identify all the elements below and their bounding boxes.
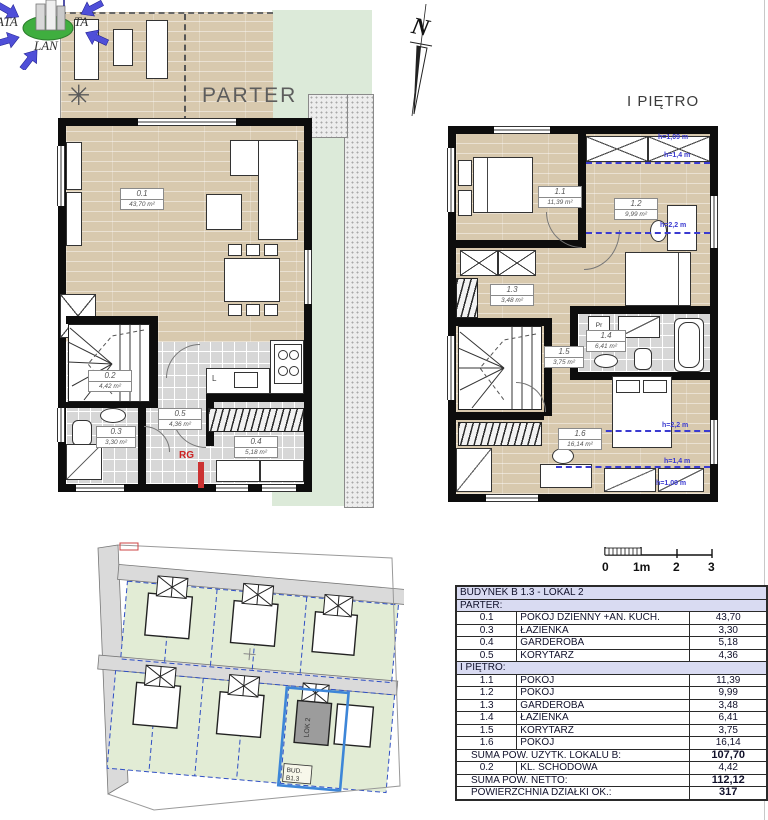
wardrobe-bench (260, 460, 304, 482)
plot-area-value: 317 (690, 787, 767, 800)
fridge-label: L (212, 374, 216, 383)
room-no: 1.2 (456, 687, 517, 700)
height-annotation: h=1,09 m (656, 480, 686, 487)
room-area: 9,99 (690, 687, 767, 700)
logo-text-ata: ATA (0, 14, 18, 29)
window (138, 118, 236, 126)
wall (570, 306, 578, 380)
wall (150, 316, 158, 402)
wardrobe-hangers (208, 408, 304, 432)
pillow (616, 380, 640, 393)
room-name: ŁAZIENKA (517, 712, 690, 725)
window (494, 126, 550, 134)
height-dashed-line (586, 162, 710, 164)
scale-tick-0: 0 (602, 560, 609, 574)
nightstand (458, 160, 472, 186)
room-name: POKÓJ (517, 737, 690, 750)
room-name: KORYTARZ (517, 649, 690, 662)
wardrobe-hangers (456, 278, 478, 318)
room-id: 1.3 (491, 285, 533, 296)
height-dashed-line (556, 466, 710, 468)
room-area: 6,41 m² (587, 342, 625, 351)
room-area: 43,70 m² (121, 200, 163, 209)
window (57, 146, 65, 206)
room-name: KL. SCHODOWA (517, 762, 690, 775)
deck-lounger (146, 20, 168, 79)
bathtub-inner (678, 322, 700, 368)
room-area: 5,18 (690, 637, 767, 650)
room-area: 4,42 (690, 762, 767, 775)
gravel-path (344, 94, 374, 508)
room-area: 4,36 m² (159, 420, 201, 429)
room-id: 1.4 (587, 331, 625, 342)
rg-red-box (198, 462, 204, 488)
scale-tick-3: 3 (708, 560, 715, 574)
dining-chair (264, 244, 278, 256)
dining-chair (264, 304, 278, 316)
room-name: POKÓJ DZIENNY +AN. KUCH. (517, 612, 690, 625)
room-label-0-3: 0.3 3,30 m² (96, 426, 136, 448)
gravel-entry (308, 94, 348, 138)
window (447, 336, 455, 400)
parter-house-outline: 0.1 43,70 m² 0.2 4,42 m² (58, 118, 312, 492)
deck-lounger (113, 29, 133, 66)
room-id: 1.5 (545, 347, 583, 358)
pietro-house-outline: 1.1 11,39 m² 1.3 3,48 m² h=1,09 m h=1,4 … (448, 126, 718, 502)
wall (66, 316, 158, 324)
floor-plan-sheet: ✳ PARTER 0.1 43,70 m² (0, 0, 768, 820)
toilet (634, 348, 652, 370)
window (486, 494, 538, 502)
room-label-1-5: 1.5 3,75 m² (544, 346, 584, 368)
table-row: 1.6 POKÓJ 16,14 (456, 737, 767, 750)
room-id: 0.2 (89, 371, 131, 382)
table-summary-row: SUMA POW. NETTO: 112,12 (456, 774, 767, 787)
built-in-wardrobe (498, 250, 536, 276)
bed-single (473, 157, 533, 213)
wall (206, 394, 304, 402)
room-name: ŁAZIENKA (517, 624, 690, 637)
parter-plan-title: PARTER (202, 84, 297, 108)
table-row: 1.1 POKÓJ 11,39 (456, 674, 767, 687)
closet (456, 448, 492, 492)
height-annotation: h=2,2 m (660, 222, 686, 229)
plot-area-label: POWIERZCHNIA DZIAŁKI OK.: (456, 787, 690, 800)
nightstand (458, 190, 472, 216)
sink (100, 408, 126, 423)
room-no: 0.2 (456, 762, 517, 775)
dining-chair (228, 304, 242, 316)
dining-chair (246, 304, 260, 316)
company-logo: ATA TA LAN (0, 0, 112, 70)
room-area: 6,41 (690, 712, 767, 725)
area-table: BUDYNEK B 1.3 - LOKAL 2 PARTER: 0.1 POKÓ… (455, 585, 768, 801)
room-area: 3,48 m² (491, 296, 533, 305)
window (447, 148, 455, 212)
bed-double (612, 376, 672, 448)
room-area: 4,36 (690, 649, 767, 662)
stool (552, 448, 574, 464)
north-arrow: N (390, 2, 450, 120)
logo-buildings (36, 0, 65, 30)
washer-label: Pr (596, 322, 603, 329)
room-no: 0.3 (456, 624, 517, 637)
room-label-0-5: 0.5 4,36 m² (158, 408, 202, 430)
room-area: 5,18 m² (235, 448, 277, 457)
table-row: 1.2 POKÓJ 9,99 (456, 687, 767, 700)
dining-table (224, 258, 280, 302)
room-area: 9,99 m² (615, 210, 657, 219)
bathtub (674, 318, 704, 372)
cooktop (274, 344, 302, 384)
wall (578, 306, 710, 314)
room-label-1-2: 1.2 9,99 m² (614, 198, 658, 220)
room-id: 1.6 (559, 429, 601, 440)
logo-text-lan: LAN (33, 38, 59, 53)
room-name: POKÓJ (517, 687, 690, 700)
scale-tick-1m: 1m (633, 560, 650, 574)
room-area: 3,48 (690, 699, 767, 712)
sofa-side (258, 140, 298, 240)
dining-chair (228, 244, 242, 256)
room-name: POKÓJ (517, 674, 690, 687)
sum-netto-label: SUMA POW. NETTO: (456, 774, 690, 787)
shelf-unit (66, 192, 82, 246)
table-row: 0.3 ŁAZIENKA 3,30 (456, 624, 767, 637)
window (710, 420, 718, 464)
scale-bar: 0 1m 2 3 (596, 544, 726, 578)
room-no: 1.3 (456, 699, 517, 712)
built-in-wardrobe (460, 250, 498, 276)
room-label-0-2: 0.2 4,42 m² (88, 370, 132, 392)
table-title: BUDYNEK B 1.3 - LOKAL 2 (456, 586, 767, 599)
shelf-unit (66, 142, 82, 190)
room-area: 3,30 m² (97, 438, 135, 447)
bed-single (625, 252, 691, 306)
dining-chair (246, 244, 260, 256)
room-no: 1.1 (456, 674, 517, 687)
highlighted-building (294, 701, 332, 746)
window (710, 196, 718, 248)
room-id: 0.3 (97, 427, 135, 438)
table-row: 0.5 KORYTARZ 4,36 (456, 649, 767, 662)
room-id: 0.1 (121, 189, 163, 200)
sum-usable-label: SUMA POW. UŻYTK. LOKALU B: (456, 749, 690, 762)
height-annotation: h=1,4 m (664, 152, 690, 159)
plot-label-line2: B1.3 (286, 775, 300, 783)
room-id: 0.4 (235, 437, 277, 448)
table-summary-row: POWIERZCHNIA DZIAŁKI OK.: 317 (456, 787, 767, 800)
room-area: 43,70 (690, 612, 767, 625)
terrace-divider-dashed (184, 14, 186, 122)
sum-netto-value: 112,12 (690, 774, 767, 787)
room-no: 1.5 (456, 724, 517, 737)
height-dashed-line (596, 430, 710, 432)
room-area: 3,75 m² (545, 358, 583, 367)
table-row: 1.3 GARDEROBA 3,48 (456, 699, 767, 712)
window (304, 250, 312, 304)
room-no: 0.4 (456, 637, 517, 650)
site-plan: LOK 2 BUD. B1.3 (92, 542, 404, 814)
shower (66, 444, 102, 480)
table-section-parter: PARTER: (456, 599, 767, 612)
logo-text-ta: TA (74, 14, 88, 29)
sum-usable-value: 107,70 (690, 749, 767, 762)
room-name: GARDEROBA (517, 699, 690, 712)
pillow (643, 380, 667, 393)
built-in-wardrobe (586, 136, 648, 162)
rg-label: RG (179, 450, 194, 461)
north-letter: N (408, 13, 433, 43)
sink (594, 354, 618, 368)
room-no: 0.1 (456, 612, 517, 625)
table-section-pietro: I PIĘTRO: (456, 662, 767, 675)
room-area: 4,42 m² (89, 382, 131, 391)
kitchen-sink (234, 372, 258, 388)
entry-door-opening (216, 484, 248, 492)
wardrobe-bench (216, 460, 260, 482)
room-area: 3,30 (690, 624, 767, 637)
pietro-plan-title: I PIĘTRO (627, 93, 699, 110)
table-row: 0.4 GARDEROBA 5,18 (456, 637, 767, 650)
room-no: 1.6 (456, 737, 517, 750)
toilet (72, 420, 92, 446)
low-closet (604, 468, 656, 492)
wall (456, 318, 552, 326)
room-no: 0.5 (456, 649, 517, 662)
table-summary-row: SUMA POW. UŻYTK. LOKALU B: 107,70 (456, 749, 767, 762)
height-annotation: h=1,4 m (664, 458, 690, 465)
scale-tick-2: 2 (673, 560, 680, 574)
room-label-1-6: 1.6 16,14 m² (558, 428, 602, 450)
wall (456, 412, 544, 420)
room-name: KORYTARZ (517, 724, 690, 737)
height-annotation: h=1,09 m (658, 134, 688, 141)
table-row: 0.2 KL. SCHODOWA 4,42 (456, 762, 767, 775)
room-area: 11,39 m² (539, 198, 581, 207)
room-label-1-3: 1.3 3,48 m² (490, 284, 534, 306)
room-label-0-1: 0.1 43,70 m² (120, 188, 164, 210)
window (57, 408, 65, 442)
room-name: GARDEROBA (517, 637, 690, 650)
plot-label-line1: BUD. (286, 767, 302, 775)
coffee-table (206, 194, 242, 230)
height-annotation: h=2,2 m (662, 422, 688, 429)
room-label-0-4: 0.4 5,18 m² (234, 436, 278, 458)
window (76, 484, 124, 492)
height-dashed-line (586, 232, 710, 234)
room-label-1-4: 1.4 6,41 m² (586, 330, 626, 352)
room-no: 1.4 (456, 712, 517, 725)
table-row: 1.5 KORYTARZ 3,75 (456, 724, 767, 737)
room-area: 11,39 (690, 674, 767, 687)
room-area: 3,75 (690, 724, 767, 737)
table-row: 1.4 ŁAZIENKA 6,41 (456, 712, 767, 725)
window (262, 484, 296, 492)
room-area: 16,14 m² (559, 440, 601, 449)
plant-icon: ✳ (67, 82, 90, 110)
room-id: 1.1 (539, 187, 581, 198)
room-area: 16,14 (690, 737, 767, 750)
wardrobe-hangers (458, 422, 542, 446)
table-row: 0.1 POKÓJ DZIENNY +AN. KUCH. 43,70 (456, 612, 767, 625)
room-id: 1.2 (615, 199, 657, 210)
room-label-1-1: 1.1 11,39 m² (538, 186, 582, 208)
room-id: 0.5 (159, 409, 201, 420)
